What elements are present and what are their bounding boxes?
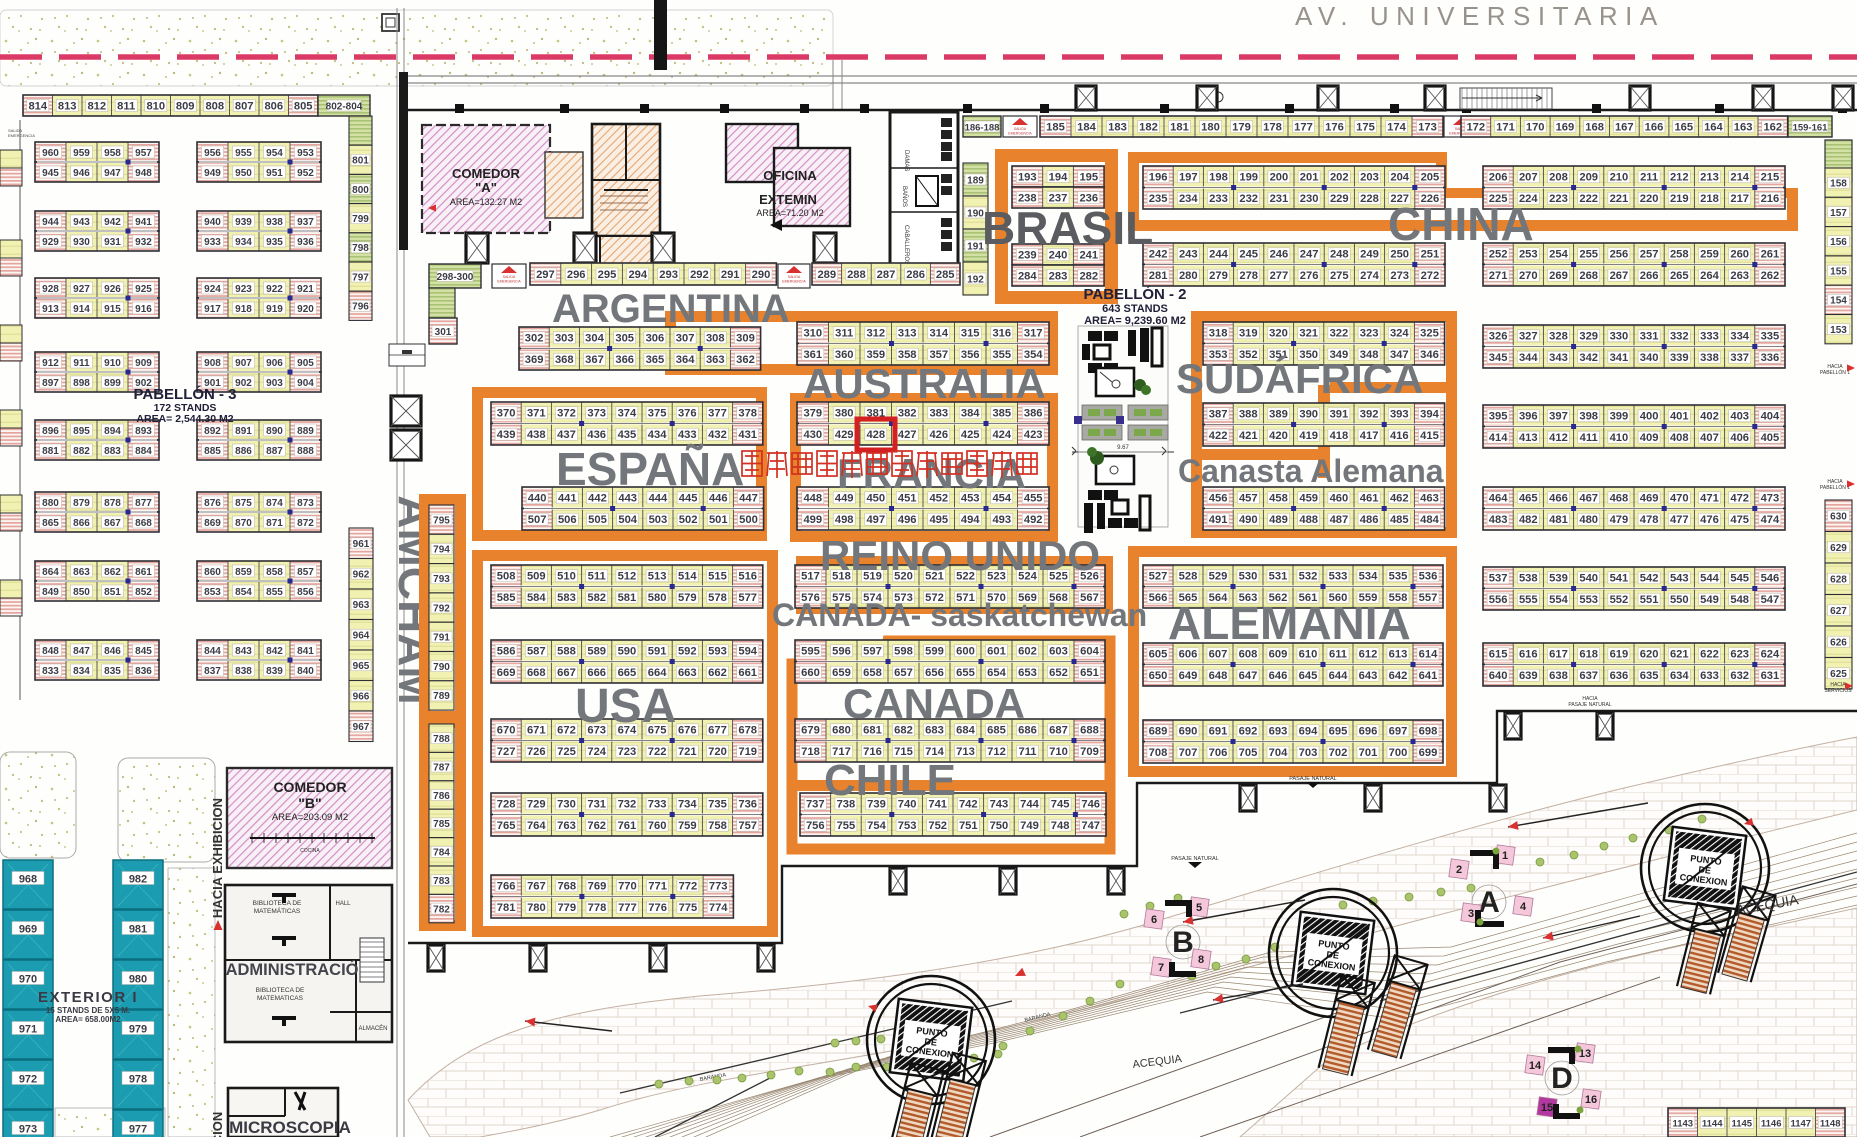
svg-text:7: 7 — [1158, 962, 1164, 974]
svg-text:COCINA: COCINA — [300, 848, 320, 854]
svg-text:790: 790 — [433, 662, 450, 673]
svg-text:157: 157 — [1830, 208, 1847, 219]
svg-text:EMERGENCIA: EMERGENCIA — [782, 280, 806, 284]
svg-text:186-188: 186-188 — [965, 122, 1000, 133]
svg-text:ARGENTINA: ARGENTINA — [552, 287, 790, 331]
svg-text:BIBLIOTECA DE: BIBLIOTECA DE — [256, 987, 305, 994]
svg-text:189: 189 — [967, 175, 984, 186]
svg-text:15 STANDS DE 5X5 M.: 15 STANDS DE 5X5 M. — [46, 1006, 130, 1015]
svg-text:Canasta Alemana: Canasta Alemana — [1178, 453, 1444, 489]
svg-text:967: 967 — [353, 722, 370, 733]
svg-text:370371372373374375376377378: 370371372373374375376377378 — [497, 408, 757, 420]
svg-text:MATEMÁTICAS: MATEMÁTICAS — [254, 906, 301, 915]
svg-text:797: 797 — [352, 272, 369, 283]
svg-text:963: 963 — [353, 600, 370, 611]
svg-text:798: 798 — [352, 243, 369, 254]
svg-text:AREA= 2,544.30 M2: AREA= 2,544.30 M2 — [136, 413, 233, 425]
svg-text:982: 982 — [129, 874, 147, 886]
svg-text:COMEDOR: COMEDOR — [452, 166, 521, 181]
svg-text:796: 796 — [352, 302, 369, 313]
svg-text:B: B — [1172, 926, 1194, 959]
svg-text:801: 801 — [352, 156, 369, 167]
svg-text:ALEMANIA: ALEMANIA — [1168, 597, 1411, 649]
svg-text:980: 980 — [129, 974, 147, 986]
svg-text:586587588589590591592593594: 586587588589590591592593594 — [497, 646, 758, 658]
svg-text:965: 965 — [353, 661, 370, 672]
svg-text:973: 973 — [19, 1124, 37, 1136]
svg-text:5: 5 — [1196, 902, 1202, 914]
svg-text:D: D — [1551, 1062, 1573, 1095]
svg-text:ESPAÑA: ESPAÑA — [556, 443, 744, 495]
svg-text:978: 978 — [129, 1074, 147, 1086]
svg-text:PABELLÓN 1: PABELLÓN 1 — [1820, 369, 1850, 376]
svg-text:15: 15 — [1541, 1102, 1553, 1114]
svg-text:785: 785 — [433, 819, 450, 830]
svg-text:AREA=132.27 M2: AREA=132.27 M2 — [450, 197, 522, 207]
svg-text:159-161: 159-161 — [1793, 122, 1829, 133]
svg-text:155: 155 — [1830, 266, 1847, 277]
svg-text:8: 8 — [1198, 954, 1204, 966]
svg-text:585584583582581580579578577: 585584583582581580579578577 — [497, 592, 757, 604]
svg-text:SALIDA: SALIDA — [503, 275, 516, 279]
svg-text:301: 301 — [435, 327, 452, 338]
svg-text:CION: CION — [210, 1112, 225, 1137]
svg-text:PASAJE NATURAL: PASAJE NATURAL — [1568, 702, 1611, 708]
svg-text:630: 630 — [1830, 512, 1847, 523]
svg-text:979: 979 — [129, 1024, 147, 1036]
svg-text:ADMINISTRACIÓN: ADMINISTRACIÓN — [226, 960, 371, 979]
svg-text:PABELLÓN 1: PABELLÓN 1 — [1820, 484, 1850, 491]
svg-text:CANADA: CANADA — [843, 680, 1025, 727]
svg-text:643 STANDS: 643 STANDS — [1102, 303, 1168, 315]
svg-text:727726725724723722721720719: 727726725724723722721720719 — [497, 746, 757, 758]
svg-text:153: 153 — [1830, 325, 1847, 336]
svg-text:SERVICIOS: SERVICIOS — [1824, 688, 1852, 694]
svg-text:CABALLEROS: CABALLEROS — [903, 225, 909, 265]
svg-text:802-804: 802-804 — [326, 101, 363, 112]
svg-text:158: 158 — [1830, 179, 1847, 190]
svg-text:OFICINA: OFICINA — [763, 168, 817, 183]
svg-text:PASAJE NATURAL: PASAJE NATURAL — [1171, 856, 1218, 862]
svg-text:COMEDOR: COMEDOR — [273, 779, 346, 795]
svg-text:CHINA: CHINA — [1388, 198, 1534, 250]
svg-text:795: 795 — [433, 515, 450, 526]
svg-text:EXTERIOR I: EXTERIOR I — [38, 989, 138, 1006]
svg-text:HALL: HALL — [335, 901, 351, 907]
svg-text:SALIDA: SALIDA — [788, 275, 801, 279]
svg-text:REINO UNIDO: REINO UNIDO — [820, 532, 1100, 579]
svg-text:EXTEMIN: EXTEMIN — [759, 192, 817, 207]
svg-text:CANADA- saskatchewan: CANADA- saskatchewan — [772, 597, 1147, 633]
svg-text:A: A — [1478, 886, 1500, 919]
svg-text:508509510511512513514515516: 508509510511512513514515516 — [497, 571, 757, 583]
svg-text:1: 1 — [1502, 850, 1508, 862]
svg-text:MATEMATICAS: MATEMATICAS — [257, 995, 304, 1002]
svg-text:192: 192 — [967, 274, 984, 285]
svg-text:800: 800 — [352, 185, 369, 196]
svg-text:971: 971 — [19, 1024, 37, 1036]
svg-text:PABELLÓN - 2: PABELLÓN - 2 — [1083, 285, 1186, 303]
svg-text:AREA= 9,239.60 M2: AREA= 9,239.60 M2 — [1084, 315, 1186, 327]
svg-text:AREA=203.09 M2: AREA=203.09 M2 — [272, 812, 348, 823]
svg-text:788: 788 — [433, 734, 450, 745]
svg-text:789: 789 — [433, 691, 450, 702]
svg-text:154: 154 — [1830, 296, 1847, 307]
svg-text:4: 4 — [1520, 901, 1527, 913]
svg-text:172171170169168167166165164163: 172171170169168167166165164163162 — [1466, 121, 1782, 133]
svg-text:792: 792 — [433, 603, 450, 614]
svg-text:SUDÁFRICA: SUDÁFRICA — [1176, 355, 1423, 402]
svg-text:16: 16 — [1585, 1094, 1597, 1106]
svg-text:625: 625 — [1830, 669, 1847, 680]
svg-text:968: 968 — [19, 874, 37, 886]
svg-text:AREA=71.20 M2: AREA=71.20 M2 — [756, 208, 823, 218]
svg-text:793: 793 — [433, 574, 450, 585]
svg-text:AUSTRALIA: AUSTRALIA — [803, 360, 1046, 407]
svg-text:961: 961 — [353, 539, 370, 550]
svg-text:BRASIL: BRASIL — [982, 202, 1153, 254]
svg-text:BAÑOS: BAÑOS — [901, 186, 908, 207]
svg-text:3: 3 — [1468, 908, 1474, 920]
svg-text:794: 794 — [433, 545, 450, 556]
svg-text:EMERGENCIA: EMERGENCIA — [1008, 132, 1032, 136]
svg-text:628: 628 — [1830, 575, 1847, 586]
svg-text:AV. UNIVERSITARIA: AV. UNIVERSITARIA — [1295, 1, 1665, 31]
svg-text:964: 964 — [353, 631, 370, 642]
svg-text:6: 6 — [1151, 914, 1157, 926]
svg-text:156: 156 — [1830, 237, 1847, 248]
svg-text:AREA= 658.00M2: AREA= 658.00M2 — [55, 1015, 121, 1024]
svg-text:FRANCIA: FRANCIA — [837, 450, 1026, 497]
svg-text:629: 629 — [1830, 543, 1847, 554]
svg-text:"A": "A" — [475, 180, 497, 195]
svg-text:669668667666665664663662661: 669668667666665664663662661 — [497, 667, 757, 679]
svg-text:969: 969 — [19, 924, 37, 936]
svg-text:765764763762761760759758757: 765764763762761760759758757 — [497, 820, 757, 832]
svg-text:626: 626 — [1830, 638, 1847, 649]
svg-text:BIBLIOTECA DE: BIBLIOTECA DE — [253, 900, 302, 907]
svg-text:298-300: 298-300 — [437, 272, 474, 283]
svg-text:USA: USA — [575, 680, 676, 733]
svg-text:CHILE: CHILE — [824, 756, 956, 805]
svg-text:782: 782 — [433, 904, 450, 915]
svg-text:728729730731732733734735736: 728729730731732733734735736 — [497, 799, 757, 811]
svg-text:"B": "B" — [298, 795, 321, 811]
svg-text:970: 970 — [19, 974, 37, 986]
svg-text:EMERGENCIA: EMERGENCIA — [8, 133, 35, 138]
svg-text:627: 627 — [1830, 606, 1847, 617]
svg-text:193194195: 193194195 — [1018, 171, 1098, 183]
svg-text:EMERGENCIA: EMERGENCIA — [497, 280, 521, 284]
svg-text:PABELLÓN - 3: PABELLÓN - 3 — [133, 385, 236, 403]
svg-text:791: 791 — [433, 633, 450, 644]
svg-text:SALIDA: SALIDA — [1014, 127, 1027, 131]
svg-text:972: 972 — [19, 1074, 37, 1086]
svg-text:DAMAS: DAMAS — [903, 150, 909, 171]
svg-text:HACIA EXHIBICION: HACIA EXHIBICION — [210, 798, 225, 918]
svg-text:981: 981 — [129, 924, 147, 936]
svg-text:439438437436435434433432431: 439438437436435434433432431 — [497, 429, 757, 441]
svg-text:799: 799 — [352, 214, 369, 225]
svg-text:PASAJE NATURAL: PASAJE NATURAL — [1289, 776, 1336, 782]
svg-text:977: 977 — [129, 1124, 147, 1136]
svg-text:2: 2 — [1456, 864, 1462, 876]
svg-text:MICROSCOPIA: MICROSCOPIA — [229, 1118, 351, 1137]
svg-text:962: 962 — [353, 570, 370, 581]
svg-text:284283282: 284283282 — [1018, 270, 1098, 282]
svg-text:783: 783 — [433, 876, 450, 887]
svg-text:9.67: 9.67 — [1117, 445, 1129, 451]
svg-text:784: 784 — [433, 848, 450, 859]
svg-text:786: 786 — [433, 791, 450, 802]
svg-text:ALMACÉN: ALMACÉN — [358, 1025, 387, 1032]
svg-text:787: 787 — [433, 762, 450, 773]
svg-text:14: 14 — [1529, 1060, 1542, 1072]
svg-text:966: 966 — [353, 692, 370, 703]
